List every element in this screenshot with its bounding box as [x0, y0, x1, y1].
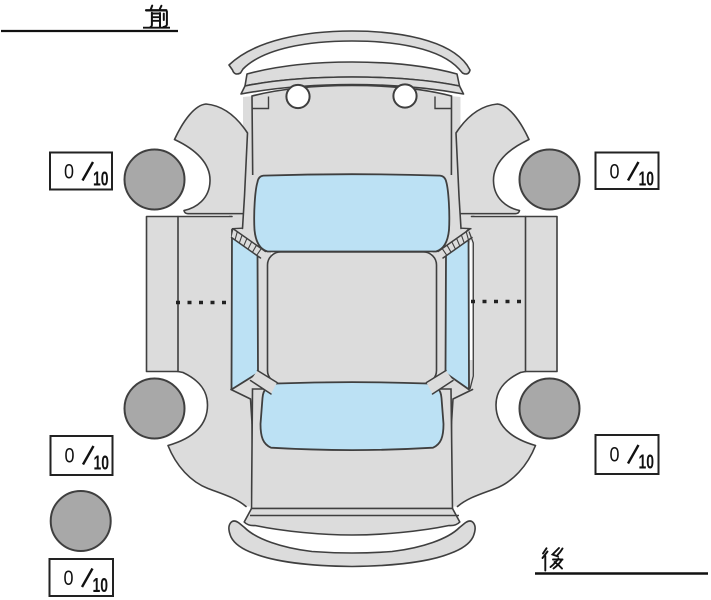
svg-text:10: 10 — [93, 169, 109, 191]
svg-text:10: 10 — [639, 452, 655, 474]
svg-text:10: 10 — [94, 453, 110, 475]
svg-text:0: 0 — [610, 161, 620, 184]
svg-text:0: 0 — [610, 444, 620, 467]
svg-text:0: 0 — [64, 567, 74, 590]
svg-text:0: 0 — [64, 161, 74, 184]
svg-text:0: 0 — [65, 445, 75, 468]
svg-text:10: 10 — [639, 169, 655, 191]
svg-text:10: 10 — [93, 575, 109, 597]
